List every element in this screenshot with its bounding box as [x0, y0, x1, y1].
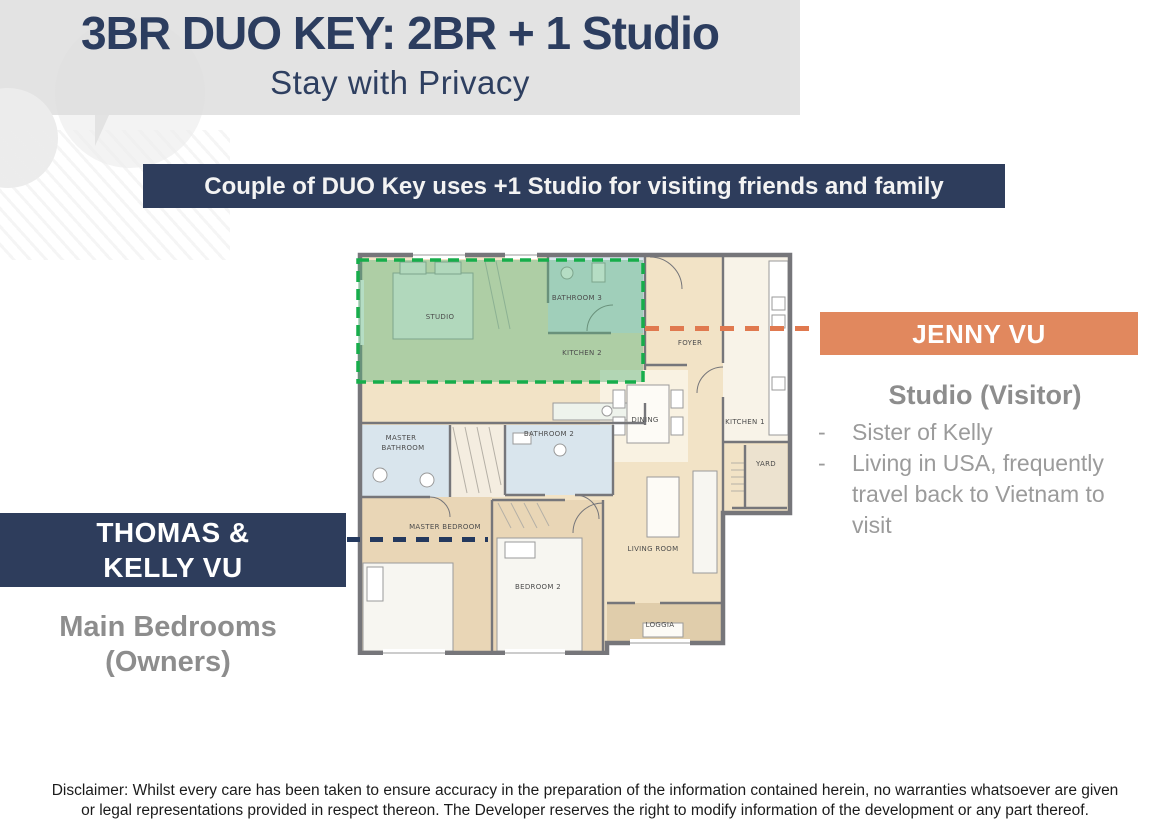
studio-connector-line	[645, 326, 821, 331]
owners-name-line1: THOMAS &	[0, 515, 346, 550]
slide-title: 3BR DUO KEY: 2BR + 1 Studio	[0, 6, 800, 60]
owners-role-line2: (Owners)	[0, 645, 336, 680]
room-label-master-bedroom: MASTER BEDROOM	[409, 523, 481, 531]
jenny-bullet-list: - Sister of Kelly - Living in USA, frequ…	[818, 417, 1118, 541]
list-item: - Sister of Kelly	[818, 417, 1118, 448]
owners-name-line2: KELLY VU	[0, 550, 346, 585]
room-label-dining: DINING	[631, 416, 658, 424]
studio-highlight-zone	[358, 260, 643, 382]
room-label-master-bathroom-2: BATHROOM	[382, 444, 425, 452]
room-label-bathroom2: BATHROOM 2	[524, 430, 574, 438]
room-label-living-room: LIVING ROOM	[628, 545, 679, 553]
room-label-bedroom2: BEDROOM 2	[515, 583, 561, 591]
header-speech-tail	[95, 115, 109, 146]
room-label-kitchen1: KITCHEN 1	[725, 418, 765, 426]
slide-subtitle: Stay with Privacy	[0, 64, 800, 102]
bullet-dash: -	[818, 417, 852, 448]
room-label-master-bathroom-1: MASTER	[386, 434, 417, 442]
owners-connector-line	[347, 537, 488, 542]
room-label-kitchen2: KITCHEN 2	[562, 349, 602, 357]
room-label-loggia: LOGGIA	[646, 621, 675, 629]
list-item: - Living in USA, frequently travel back …	[818, 448, 1118, 541]
owners-banner: THOMAS & KELLY VU	[0, 513, 346, 587]
bullet-text: Sister of Kelly	[852, 417, 1114, 448]
owners-role-line1: Main Bedrooms	[0, 610, 336, 645]
disclaimer-text: Disclaimer: Whilst every care has been t…	[45, 781, 1125, 821]
floor-plan: STUDIO BATHROOM 3 KITCHEN 2 FOYER KITCHE…	[355, 245, 800, 655]
room-label-studio: STUDIO	[426, 313, 455, 321]
bullet-text: Living in USA, frequently travel back to…	[852, 448, 1114, 541]
owners-role-heading: Main Bedrooms (Owners)	[0, 610, 336, 680]
bullet-dash: -	[818, 448, 852, 541]
room-label-yard: YARD	[755, 460, 776, 468]
jenny-role-heading: Studio (Visitor)	[825, 380, 1145, 411]
key-message-banner: Couple of DUO Key uses +1 Studio for vis…	[143, 164, 1005, 208]
room-label-bathroom3: BATHROOM 3	[552, 294, 602, 302]
room-label-foyer: FOYER	[678, 339, 702, 347]
jenny-vu-banner: JENNY VU	[820, 312, 1138, 355]
